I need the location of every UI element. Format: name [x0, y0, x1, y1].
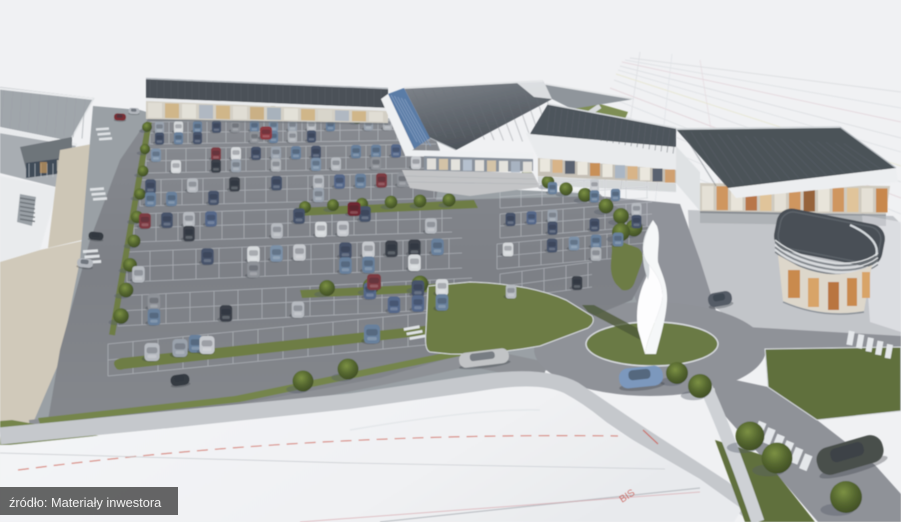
svg-text:źródło: Materiały inwestora: źródło: Materiały inwestora	[9, 495, 162, 510]
